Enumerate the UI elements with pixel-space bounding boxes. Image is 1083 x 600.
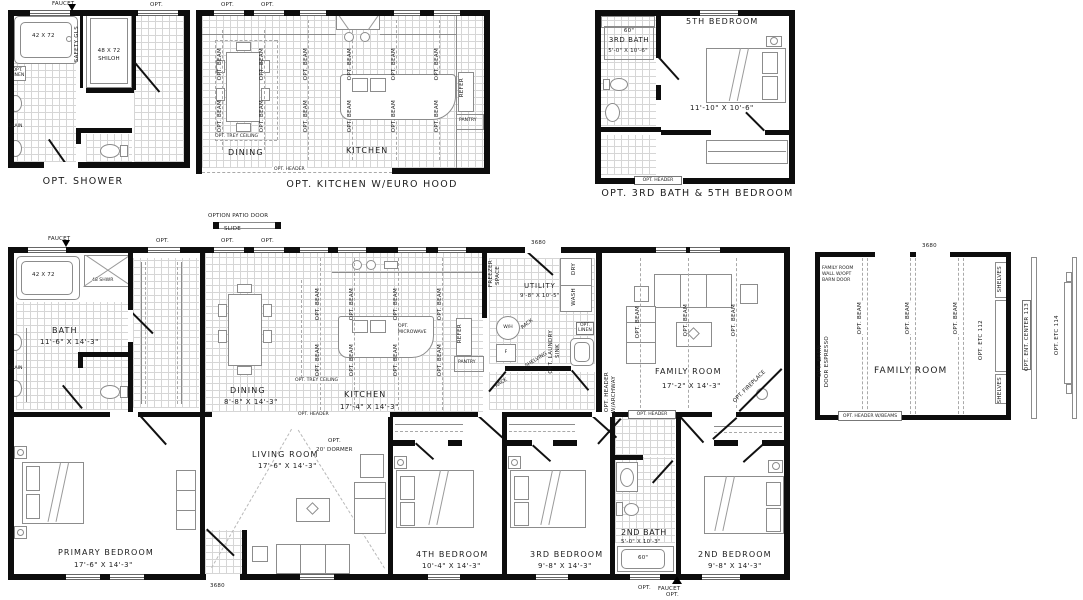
furniture bbox=[706, 140, 788, 164]
lamp bbox=[17, 449, 24, 456]
dimension-label: 17'-2" X 14'-3" bbox=[662, 382, 721, 390]
wall bbox=[76, 128, 132, 133]
window bbox=[66, 574, 100, 580]
door-size-label: 3680 bbox=[530, 240, 547, 246]
opt-header-label: OPT. HEADER bbox=[296, 412, 331, 417]
toilet bbox=[100, 385, 120, 399]
beam-label: OPT. BEAM bbox=[391, 48, 397, 80]
room-label-5th-bedroom: 5TH BEDROOM bbox=[686, 17, 758, 26]
freezer-space-label-1: FREEZER bbox=[488, 260, 494, 287]
laundry-sink-basin bbox=[574, 342, 590, 362]
window bbox=[338, 247, 366, 253]
lamp bbox=[17, 529, 24, 536]
wall bbox=[484, 10, 490, 174]
tub-size-label: 42 X 72 bbox=[32, 33, 55, 39]
door-opening bbox=[875, 252, 910, 257]
dresser-line bbox=[177, 490, 195, 491]
room-label-bath2: 2ND BATH bbox=[621, 528, 667, 537]
door-swing bbox=[140, 416, 167, 446]
island-sink bbox=[370, 320, 386, 333]
opt-header-label: OPT. HEADER bbox=[634, 178, 682, 183]
beam-line bbox=[442, 258, 443, 410]
patio-door-label: OPTION PATIO DOOR bbox=[208, 213, 268, 219]
window bbox=[300, 247, 328, 253]
window bbox=[394, 10, 420, 16]
opt-window-label: OPT. bbox=[150, 2, 163, 8]
freezer-space-label-2: SPACE bbox=[495, 266, 501, 285]
microwave-label-2: MICROWAVE bbox=[398, 330, 427, 335]
wall bbox=[507, 440, 532, 446]
island-sink bbox=[352, 78, 368, 92]
chair bbox=[360, 454, 384, 478]
refrigerator-label: REFER bbox=[459, 78, 465, 97]
tile-floor bbox=[133, 258, 199, 408]
sofa-cushion-line bbox=[680, 275, 681, 307]
barn-door-label-1: OPT. BARN bbox=[817, 345, 823, 377]
closet-door-swing bbox=[532, 445, 551, 463]
counter-edge bbox=[26, 328, 27, 402]
trey-ceiling-line bbox=[215, 140, 277, 141]
chair bbox=[236, 123, 251, 132]
dormer-label-2: 20' DORMER bbox=[316, 447, 353, 453]
wall bbox=[196, 10, 202, 174]
toilet bbox=[100, 144, 120, 158]
sofa-cushion-line bbox=[300, 545, 301, 573]
beam-label: OPT. BEAM bbox=[217, 48, 223, 80]
bed-pillow bbox=[762, 76, 778, 100]
safety-glass-label: SAFETY GLS bbox=[74, 26, 80, 62]
chair bbox=[237, 366, 252, 375]
beam-label: OPT. BEAM bbox=[905, 302, 911, 334]
opt-window-label: OPT. bbox=[221, 238, 234, 244]
closet-door-swing bbox=[743, 444, 764, 463]
window bbox=[254, 247, 284, 253]
wall bbox=[596, 253, 602, 412]
shelves-label: SHELVES bbox=[997, 377, 1003, 403]
dryer-label: DRY bbox=[571, 263, 577, 275]
window bbox=[434, 10, 460, 16]
barn-wall-note-1: FAMILY ROOM bbox=[822, 266, 853, 271]
beam-label: OPT. BEAM bbox=[347, 100, 353, 132]
door-size-label: 3680 bbox=[210, 583, 225, 589]
beam-label: OPT. BEAM bbox=[217, 100, 223, 132]
window bbox=[28, 247, 66, 253]
dimension-label: 17'-6" X 14'-3" bbox=[74, 561, 133, 569]
trey-ceiling-line bbox=[301, 280, 302, 378]
drain-label: DRAIN bbox=[8, 124, 22, 129]
dining-table bbox=[228, 294, 262, 366]
laundry-sink-label-2: SINK bbox=[555, 344, 561, 358]
wall bbox=[78, 352, 83, 368]
opt-window-label: OPT. bbox=[638, 585, 651, 591]
door-opening bbox=[712, 412, 736, 417]
shower-size-label: 48 X 72 bbox=[89, 48, 129, 54]
tile-floor bbox=[615, 417, 675, 455]
opt-label: OPT. bbox=[666, 592, 679, 598]
beam-line bbox=[862, 258, 863, 414]
wall bbox=[1006, 252, 1011, 420]
side-table bbox=[634, 286, 649, 302]
bed-pillow bbox=[26, 466, 40, 491]
beam-label: OPT. BEAM bbox=[857, 302, 863, 334]
dimension-label: 17'-6" X 14'-3" bbox=[258, 462, 317, 470]
archway-label-2: W/ARCHWAY bbox=[611, 376, 617, 413]
bed-pillow bbox=[514, 502, 529, 526]
wall bbox=[595, 10, 795, 16]
door-swing bbox=[680, 417, 704, 444]
wall bbox=[76, 128, 81, 144]
window bbox=[300, 10, 326, 16]
wall bbox=[610, 412, 615, 574]
window bbox=[428, 574, 460, 580]
opt-window-label: OPT. bbox=[261, 238, 274, 244]
beam-label: OPT. BEAM bbox=[349, 344, 355, 376]
wall bbox=[502, 412, 507, 574]
door-opening bbox=[128, 310, 133, 342]
window bbox=[214, 247, 244, 253]
wall bbox=[595, 10, 601, 184]
dimension-label: 9'-8" X 14'-3" bbox=[538, 562, 592, 570]
beam-label: OPT. BEAM bbox=[731, 304, 737, 336]
closet-rod bbox=[181, 262, 182, 404]
bed-pillow bbox=[400, 502, 415, 526]
chair bbox=[218, 330, 227, 343]
closet-rod-dash bbox=[395, 431, 463, 432]
chaise-line bbox=[627, 342, 655, 343]
furnace-label: F bbox=[496, 350, 516, 355]
beam-label: OPT. BEAM bbox=[437, 288, 443, 320]
room-label-kitchen: KITCHEN bbox=[346, 146, 388, 155]
opt-window-label: OPT. bbox=[221, 2, 234, 8]
dimension-label: 9'-8" X 10'-5" bbox=[520, 293, 560, 299]
dimension-label: 10'-4" X 14'-3" bbox=[422, 562, 481, 570]
door-opening bbox=[916, 252, 950, 257]
tv-profile bbox=[1064, 282, 1072, 384]
sink bbox=[620, 468, 634, 487]
sofa-cushion-line bbox=[325, 545, 326, 573]
room-label-kitchen: KITCHEN bbox=[344, 390, 386, 399]
bed-pillow bbox=[400, 476, 415, 500]
trey-ceiling-label: OPT. TREY CEILING bbox=[294, 378, 339, 383]
beam-label: OPT. BEAM bbox=[437, 344, 443, 376]
bed-pillow bbox=[766, 482, 781, 506]
chair bbox=[263, 304, 272, 317]
beam-label: OPT. BEAM bbox=[303, 100, 309, 132]
armchair-line bbox=[355, 498, 385, 499]
bed-pillow bbox=[514, 476, 529, 500]
wall bbox=[595, 127, 661, 132]
window bbox=[214, 10, 244, 16]
door-opening bbox=[44, 162, 78, 168]
room-label-primary: PRIMARY BEDROOM bbox=[58, 548, 154, 557]
dimension-label: 8'-8" X 14'-3" bbox=[224, 398, 278, 406]
cooktop-burner bbox=[360, 32, 370, 42]
shelves-label: SHELVES bbox=[997, 266, 1003, 292]
etc-label: OPT. ETC 112 bbox=[978, 320, 984, 360]
bed-pillow bbox=[26, 494, 40, 519]
chair bbox=[218, 304, 227, 317]
caption-opt-shower: OPT. SHOWER bbox=[22, 177, 144, 188]
door-opening bbox=[525, 247, 561, 253]
wall bbox=[448, 440, 462, 446]
toilet bbox=[624, 503, 639, 516]
wall bbox=[595, 178, 635, 184]
wall bbox=[8, 10, 14, 168]
chair bbox=[263, 330, 272, 343]
trey-ceiling-label: OPT. TREY CEILING bbox=[214, 134, 259, 139]
wall bbox=[200, 412, 205, 574]
bed-pillow bbox=[766, 508, 781, 532]
window bbox=[110, 574, 144, 580]
opt-header-label: OPT. HEADER bbox=[628, 412, 676, 417]
tile-floor bbox=[600, 135, 656, 175]
wall bbox=[482, 253, 487, 318]
tv-label: OPT. ETC 114 bbox=[1054, 315, 1060, 355]
room-label-dining: DINING bbox=[230, 386, 266, 395]
beam-label: OPT. BEAM bbox=[393, 344, 399, 376]
dormer-label-1: OPT. bbox=[328, 438, 341, 444]
entertainment-center-profile bbox=[1031, 257, 1037, 419]
wall bbox=[661, 130, 711, 135]
beam-label: OPT. BEAM bbox=[259, 48, 265, 80]
wall bbox=[553, 440, 577, 446]
side-table bbox=[740, 284, 758, 304]
faucet-arrow-icon bbox=[62, 240, 70, 247]
dresser-line bbox=[177, 510, 195, 511]
wall bbox=[815, 252, 1011, 257]
shower-size-label: 48 SHWR bbox=[92, 278, 113, 283]
ent-center-label: OPT. ENT. CENTER 113 bbox=[1024, 303, 1030, 371]
beam-label: OPT. BEAM bbox=[683, 304, 689, 336]
wall bbox=[200, 253, 205, 412]
beam-label: OPT. BEAM bbox=[393, 288, 399, 320]
bath-size-label: 60" bbox=[604, 28, 654, 34]
beam-label: OPT. BEAM bbox=[434, 48, 440, 80]
room-label-bed3: 3RD BEDROOM bbox=[530, 550, 603, 559]
wall bbox=[388, 412, 393, 574]
cooktop-burner bbox=[344, 32, 354, 42]
beam-label: OPT. BEAM bbox=[315, 344, 321, 376]
wall bbox=[242, 530, 247, 574]
door-size-label: 3680 bbox=[922, 243, 937, 249]
beam-line bbox=[915, 258, 916, 414]
wall bbox=[762, 440, 784, 446]
tub-size-label: 42 X 72 bbox=[32, 272, 55, 278]
closet-rod-dash bbox=[177, 262, 178, 404]
beam-line bbox=[963, 258, 964, 414]
beam-line bbox=[320, 258, 321, 410]
chair bbox=[236, 42, 251, 51]
beam-line bbox=[354, 258, 355, 410]
beam-label: OPT. BEAM bbox=[303, 48, 309, 80]
window bbox=[656, 247, 686, 253]
beam-label: OPT. BEAM bbox=[347, 48, 353, 80]
door-opening bbox=[206, 574, 240, 580]
closet-rod-dash bbox=[509, 431, 575, 432]
floor-plan-drawing: FAUCET OPT. 42 X 72 SAFETY GLS 48 X 72 S… bbox=[0, 0, 1083, 600]
lamp bbox=[772, 462, 780, 470]
counter-edge bbox=[380, 34, 456, 35]
window bbox=[30, 10, 70, 16]
room-label-bed4: 4TH BEDROOM bbox=[416, 550, 488, 559]
wall bbox=[80, 12, 83, 88]
trey-ceiling-line bbox=[277, 40, 278, 140]
beam-label: OPT. BEAM bbox=[635, 306, 641, 338]
room-label-dining: DINING bbox=[228, 148, 264, 157]
dimension-label: 11'-6" X 14'-3" bbox=[40, 338, 99, 346]
window bbox=[254, 10, 284, 16]
caption-opt-3rd-bath: OPT. 3RD BATH & 5TH BEDROOM bbox=[600, 189, 795, 200]
counter-appliance bbox=[384, 261, 398, 269]
counter-edge bbox=[202, 34, 336, 35]
wall bbox=[392, 168, 490, 174]
tub-faucet bbox=[66, 36, 72, 42]
beam-line bbox=[308, 20, 309, 160]
dimension-label: 5'-0" X 10'-3" bbox=[621, 539, 661, 545]
tv-back-panel bbox=[1072, 257, 1077, 419]
wall bbox=[815, 252, 820, 420]
cooktop-burner bbox=[366, 260, 376, 270]
beam-label: OPT. BEAM bbox=[349, 288, 355, 320]
wall bbox=[132, 12, 136, 90]
faucet-arrow-icon bbox=[672, 576, 682, 584]
pantry-label: PANTRY bbox=[459, 118, 477, 123]
shower-model-label: SHILOH bbox=[89, 56, 129, 62]
wall bbox=[184, 10, 190, 168]
tub-inner bbox=[20, 22, 72, 58]
window bbox=[700, 10, 738, 16]
toilet-tank bbox=[120, 386, 128, 398]
sofa bbox=[654, 274, 732, 308]
archway-label-1: OPT. HEADER bbox=[604, 372, 610, 412]
laundry-sink-label-1: OPT. LAUNDRY bbox=[548, 330, 554, 374]
pantry-label: PANTRY bbox=[458, 360, 476, 365]
bed-pillow bbox=[762, 52, 778, 74]
refrigerator-label: REFER bbox=[457, 324, 463, 343]
tub-size-label: 60" bbox=[638, 555, 648, 561]
counter-edge bbox=[456, 16, 457, 168]
trey-ceiling-line bbox=[215, 40, 277, 41]
room-label-bath: BATH bbox=[52, 326, 78, 335]
window bbox=[438, 247, 466, 253]
beam-label: OPT. BEAM bbox=[953, 302, 959, 334]
beam-label: OPT. BEAM bbox=[315, 288, 321, 320]
door-swing bbox=[712, 417, 737, 440]
window bbox=[148, 247, 180, 253]
closet-door-swing bbox=[415, 443, 434, 461]
window bbox=[702, 574, 740, 580]
opt-window-label: OPT. bbox=[156, 238, 169, 244]
chair bbox=[237, 284, 252, 293]
window bbox=[398, 247, 426, 253]
room-label-3rd-bath: 3RD BATH bbox=[604, 36, 654, 44]
wall bbox=[505, 366, 571, 371]
closet-rod-dash bbox=[145, 262, 146, 404]
tv-bracket bbox=[1066, 384, 1072, 394]
wall bbox=[683, 178, 795, 184]
door-swing bbox=[478, 416, 503, 439]
linen-label: OPT. LINEN bbox=[577, 323, 593, 334]
closet-shelf bbox=[395, 424, 463, 425]
wall bbox=[789, 10, 795, 184]
sink bbox=[605, 103, 620, 122]
closet-shelf bbox=[509, 424, 575, 425]
opt-header-label: OPT. HEADER bbox=[272, 167, 307, 172]
washer-label: WASH bbox=[571, 288, 577, 306]
opt-header-beams-label: OPT. HEADER W/BEAMS bbox=[838, 414, 902, 419]
door-opening bbox=[478, 412, 502, 417]
opt-window-label: OPT. bbox=[261, 2, 274, 8]
wall bbox=[78, 352, 130, 357]
caption-opt-kitchen: OPT. KITCHEN W/EURO HOOD bbox=[282, 180, 462, 191]
wall bbox=[390, 440, 415, 446]
dimension-label: 5'-0" X 10'-6" bbox=[600, 48, 656, 54]
faucet-arrow-icon bbox=[68, 4, 76, 11]
furniture-line bbox=[708, 151, 786, 152]
chair bbox=[252, 546, 268, 562]
barn-door-label-2: DOOR ESPRESSO bbox=[824, 336, 830, 387]
linen-label: OPT. LINEN bbox=[10, 68, 25, 79]
dining-table bbox=[226, 52, 260, 122]
wall bbox=[8, 162, 190, 168]
toilet-tank bbox=[120, 145, 128, 157]
armchair bbox=[354, 482, 386, 534]
door-swing bbox=[658, 57, 680, 81]
door-swing bbox=[745, 112, 765, 132]
door-opening bbox=[110, 412, 138, 417]
closet-rod-dash bbox=[714, 432, 782, 433]
closet-rod bbox=[141, 262, 142, 404]
window bbox=[536, 574, 568, 580]
patio-door-jamb bbox=[213, 222, 219, 229]
toilet bbox=[610, 78, 628, 91]
wall bbox=[784, 247, 790, 580]
room-label-opt-family: FAMILY ROOM bbox=[874, 366, 947, 376]
washer-dryer-divider bbox=[561, 285, 591, 286]
dimension-label: 9'-8" X 14'-3" bbox=[708, 562, 762, 570]
barn-wall-note-2: WALL W/OPT bbox=[822, 272, 851, 277]
barn-wall-note-3: BARN DOOR bbox=[822, 278, 850, 283]
beam-label: OPT. BEAM bbox=[391, 100, 397, 132]
lamp bbox=[511, 459, 518, 466]
dimension-label: 11'-10" X 10'-6" bbox=[690, 104, 754, 112]
lamp bbox=[397, 459, 404, 466]
lamp bbox=[770, 37, 778, 45]
patio-door-jamb bbox=[275, 222, 281, 229]
beam-label: OPT. BEAM bbox=[259, 100, 265, 132]
wall bbox=[656, 85, 661, 100]
beam-line bbox=[958, 258, 959, 414]
window bbox=[138, 10, 178, 16]
room-label-living: LIVING ROOM bbox=[252, 450, 319, 459]
wall bbox=[676, 412, 681, 574]
beam-line bbox=[910, 258, 911, 414]
dresser bbox=[176, 470, 196, 530]
wall bbox=[615, 455, 643, 460]
drain-label: DRAIN bbox=[8, 366, 22, 371]
wall bbox=[714, 440, 738, 446]
sofa bbox=[276, 544, 350, 574]
wall bbox=[656, 10, 661, 58]
water-heater-label: W/H bbox=[496, 325, 520, 330]
room-label-family: FAMILY ROOM bbox=[655, 367, 722, 376]
toilet-tank bbox=[603, 79, 610, 90]
window bbox=[690, 247, 720, 253]
tv-bracket bbox=[1066, 272, 1072, 282]
beam-label: OPT. BEAM bbox=[434, 100, 440, 132]
window bbox=[300, 574, 334, 580]
patio-door-slide-label: SLIDE bbox=[224, 226, 241, 232]
